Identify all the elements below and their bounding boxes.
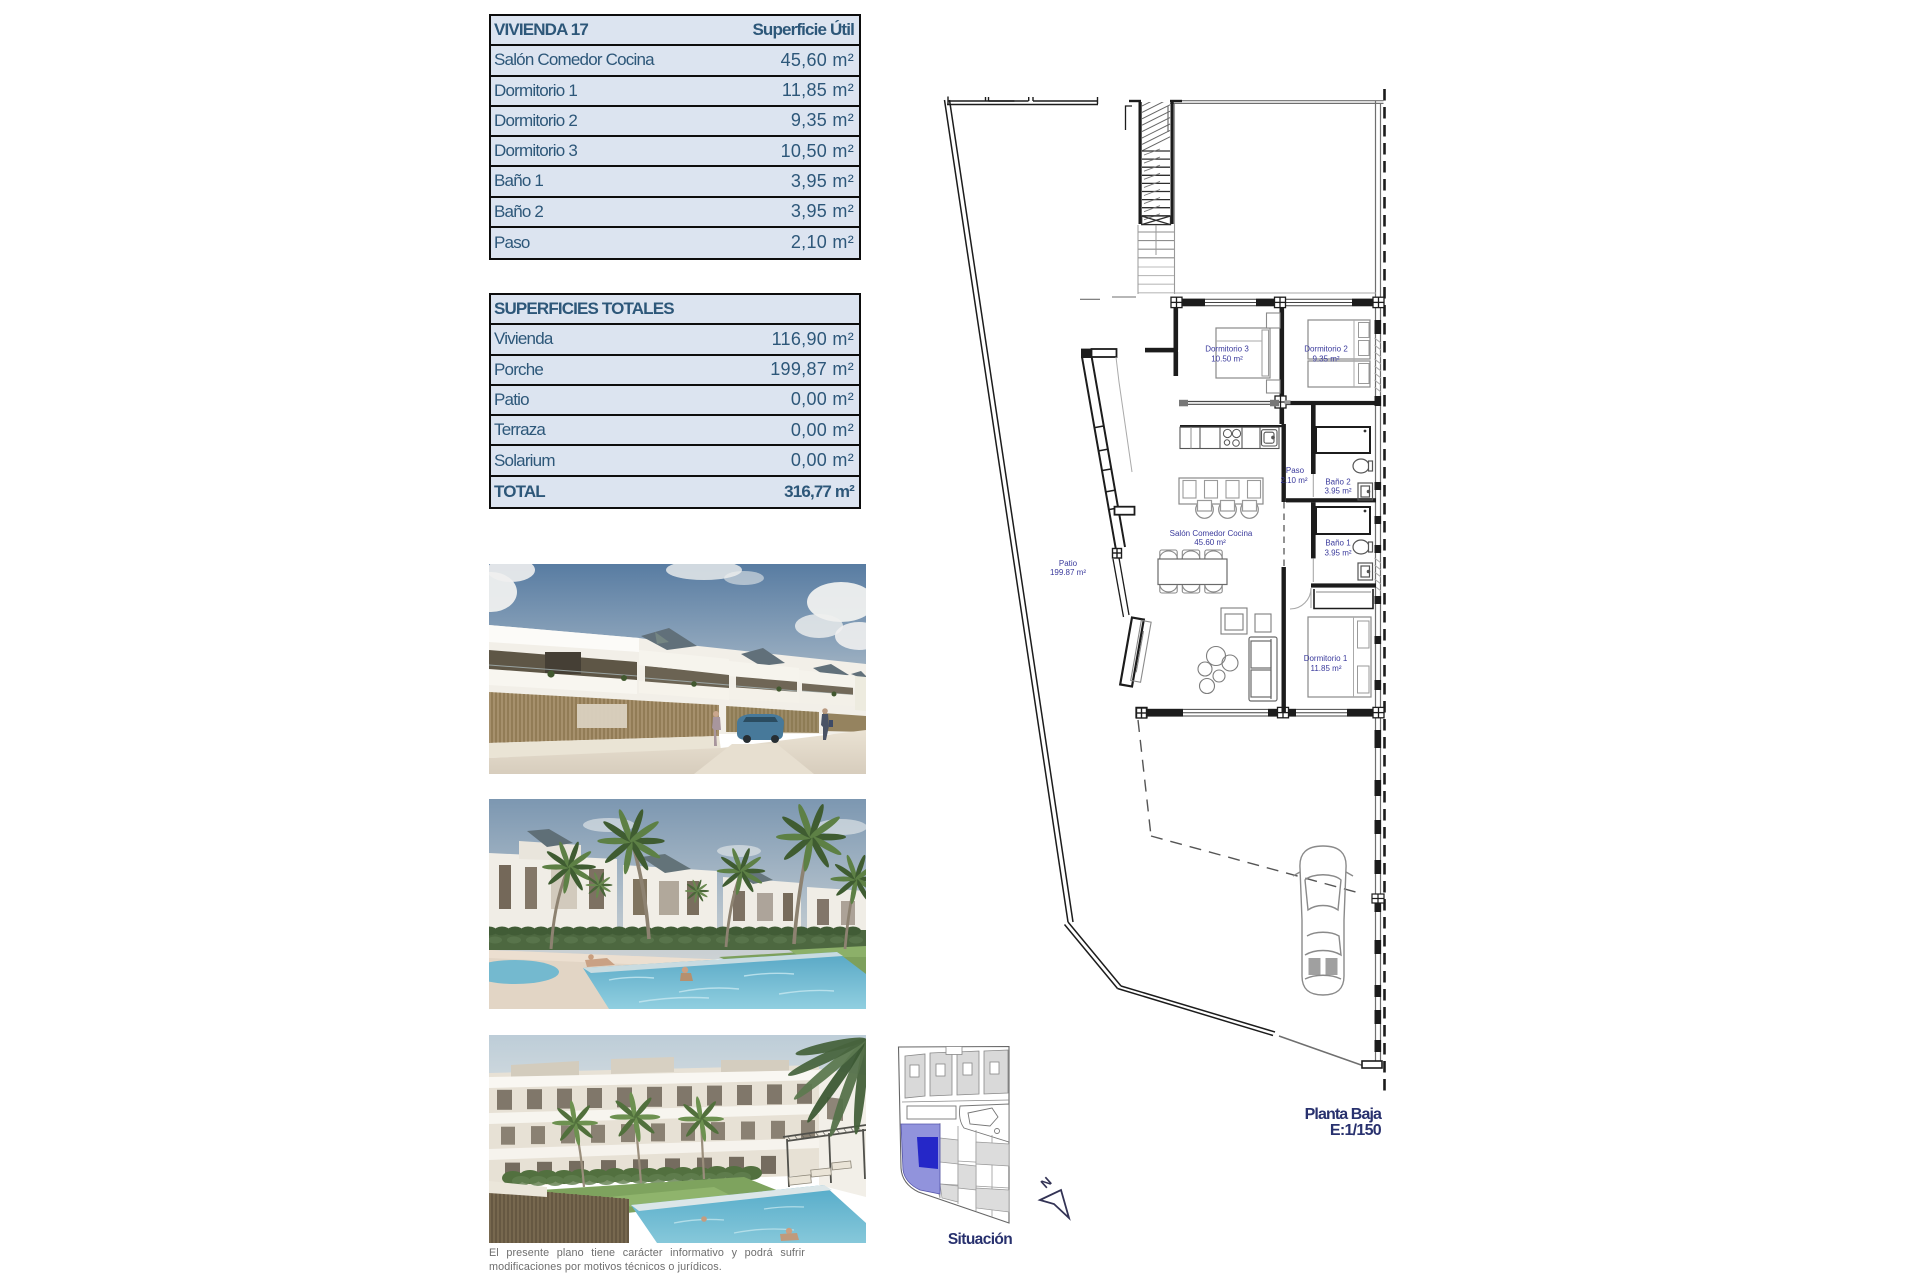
svg-text:Dormitorio 2: Dormitorio 2 — [1304, 345, 1348, 354]
svg-text:Dormitorio 1: Dormitorio 1 — [1304, 654, 1348, 663]
svg-text:10.50 m²: 10.50 m² — [1211, 355, 1243, 364]
svg-text:Paso: Paso — [1286, 466, 1305, 475]
svg-text:E:1/150: E:1/150 — [1330, 1122, 1382, 1139]
svg-text:11.85 m²: 11.85 m² — [1311, 664, 1342, 673]
svg-text:Situación: Situación — [948, 1231, 1012, 1248]
svg-text:45.60 m²: 45.60 m² — [1194, 538, 1226, 547]
svg-text:Dormitorio 3: Dormitorio 3 — [1205, 345, 1249, 354]
svg-text:Patio: Patio — [1059, 559, 1078, 568]
svg-text:N: N — [1038, 1174, 1055, 1191]
svg-text:3.95 m²: 3.95 m² — [1324, 487, 1351, 496]
svg-text:Salón Comedor Cocina: Salón Comedor Cocina — [1170, 529, 1253, 538]
svg-text:Baño 1: Baño 1 — [1325, 539, 1351, 548]
svg-text:9.35 m²: 9.35 m² — [1312, 355, 1339, 364]
svg-text:Baño 2: Baño 2 — [1325, 478, 1351, 487]
svg-text:199.87 m²: 199.87 m² — [1050, 568, 1086, 577]
svg-text:3.95 m²: 3.95 m² — [1324, 549, 1351, 558]
svg-text:Planta Baja: Planta Baja — [1305, 1106, 1382, 1123]
svg-text:2.10 m²: 2.10 m² — [1280, 476, 1307, 485]
